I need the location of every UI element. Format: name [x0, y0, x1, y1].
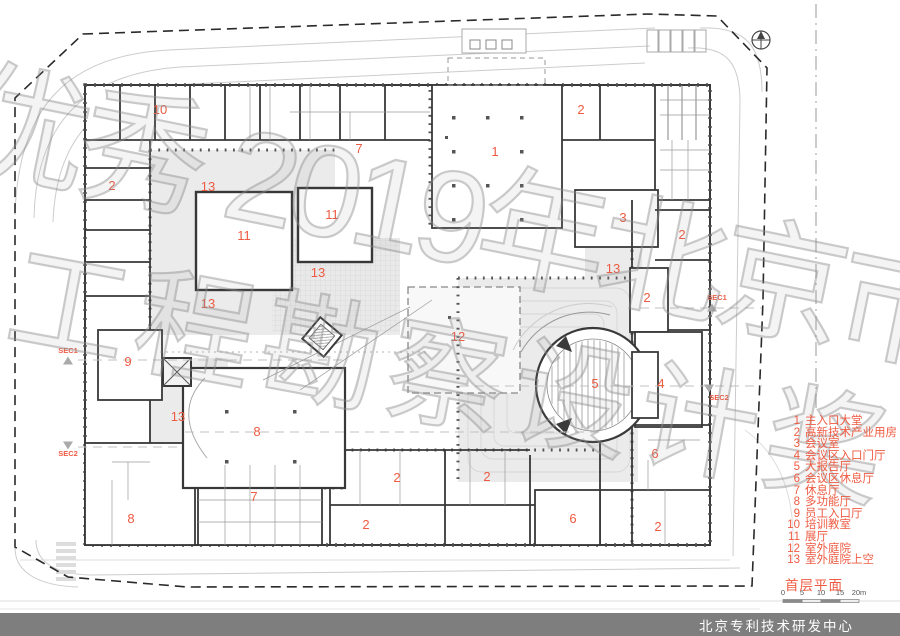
room-number-label: 5	[591, 376, 598, 391]
project-title: 北京专利技术研发中心	[699, 615, 854, 635]
room-number-label: 2	[362, 517, 369, 532]
room-number-label: 2	[577, 102, 584, 117]
room-legend: 1主入口大堂2高新技术产业用房3会议室4会议区入口门厅5大报告厅6会议区休息厅7…	[785, 416, 898, 567]
room-number-label: 2	[678, 227, 685, 242]
room-number-label: 6	[569, 511, 576, 526]
legend-item: 10培训教室	[785, 520, 898, 532]
room-number-label: 13	[201, 179, 215, 194]
north-arrow-icon	[752, 31, 770, 49]
room-number-label: 4	[657, 376, 664, 391]
legend-item: 13室外庭院上空	[785, 555, 898, 567]
room-number-label: 7	[250, 489, 257, 504]
room-number-label: 11	[237, 228, 251, 243]
room-number-label: 10	[153, 102, 167, 117]
legend-item-label: 展厅	[805, 532, 828, 544]
section-marker-label: SEC1	[707, 293, 727, 302]
room-number-label: 3	[619, 210, 626, 225]
legend-item-number: 13	[785, 555, 800, 567]
room-number-label: 9	[124, 354, 131, 369]
room-number-label: 2	[108, 178, 115, 193]
legend-item: 11展厅	[785, 532, 898, 544]
legend-item-number: 1	[785, 416, 800, 428]
room-number-label: 13	[606, 261, 620, 276]
room-number-label: 2	[643, 290, 650, 305]
legend-item-label: 会议区休息厅	[805, 474, 874, 486]
legend-item: 2高新技术产业用房	[785, 428, 898, 440]
section-marker-arrow-icon	[63, 357, 73, 365]
room-number-label: 12	[451, 329, 465, 344]
room-number-label: 8	[253, 424, 260, 439]
room-number-label: 7	[355, 141, 362, 156]
site-objects	[462, 29, 770, 53]
stair-tower	[163, 358, 191, 386]
legend-item-number: 8	[785, 497, 800, 509]
legend-item-number: 6	[785, 474, 800, 486]
room-number-label: 13	[171, 409, 185, 424]
floor-plan-drawing: 1027121311113213132139125413822678262 SE…	[0, 0, 900, 636]
legend-item-number: 11	[785, 532, 800, 544]
title-bar: 北京专利技术研发中心	[0, 613, 900, 636]
room-number-label: 13	[311, 265, 325, 280]
scale-tick-label: 20m	[852, 588, 867, 597]
legend-item: 1主入口大堂	[785, 416, 898, 428]
room-number-label: 2	[654, 519, 661, 534]
legend-item-label: 主入口大堂	[805, 416, 863, 428]
room-number-label: 13	[201, 296, 215, 311]
room-number-label: 1	[491, 144, 498, 159]
section-marker-label: SEC1	[58, 346, 78, 355]
section-marker-label: SEC2	[709, 393, 729, 402]
room-number-label: 8	[127, 511, 134, 526]
legend-item: 6会议区休息厅	[785, 474, 898, 486]
building	[78, 58, 762, 545]
room-number-label: 6	[651, 446, 658, 461]
section-marker-label: SEC2	[58, 449, 78, 458]
plan-title: 首层平面	[785, 574, 843, 594]
room-number-label: 11	[325, 207, 339, 222]
legend-item-label: 室外庭院上空	[805, 555, 874, 567]
legend-item: 8多功能厅	[785, 497, 898, 509]
legend-item-label: 多功能厅	[805, 497, 851, 509]
room-number-label: 2	[483, 469, 490, 484]
room-number-label: 2	[393, 470, 400, 485]
